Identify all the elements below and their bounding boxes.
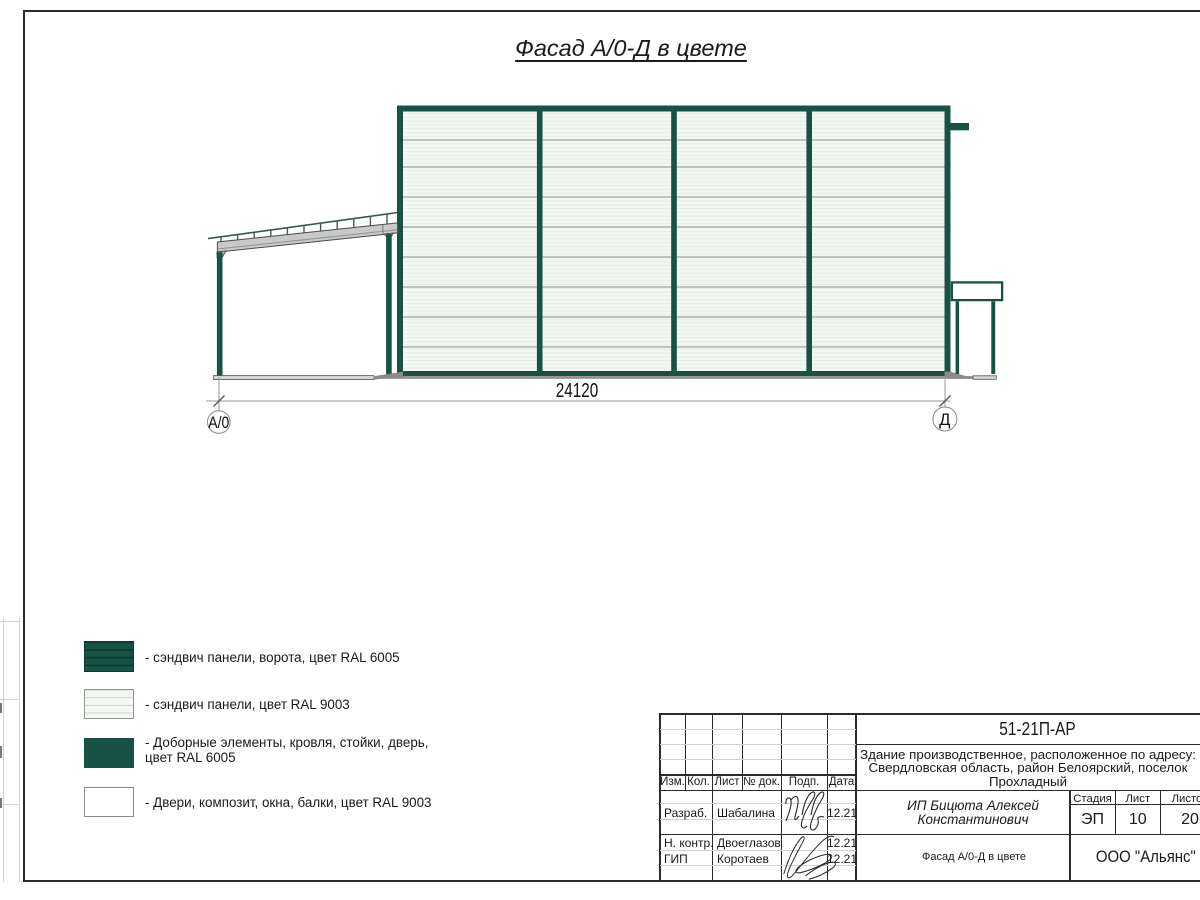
- svg-text:24120: 24120: [556, 379, 599, 402]
- svg-text:Д: Д: [939, 411, 950, 429]
- svg-text:А/0: А/0: [208, 414, 229, 432]
